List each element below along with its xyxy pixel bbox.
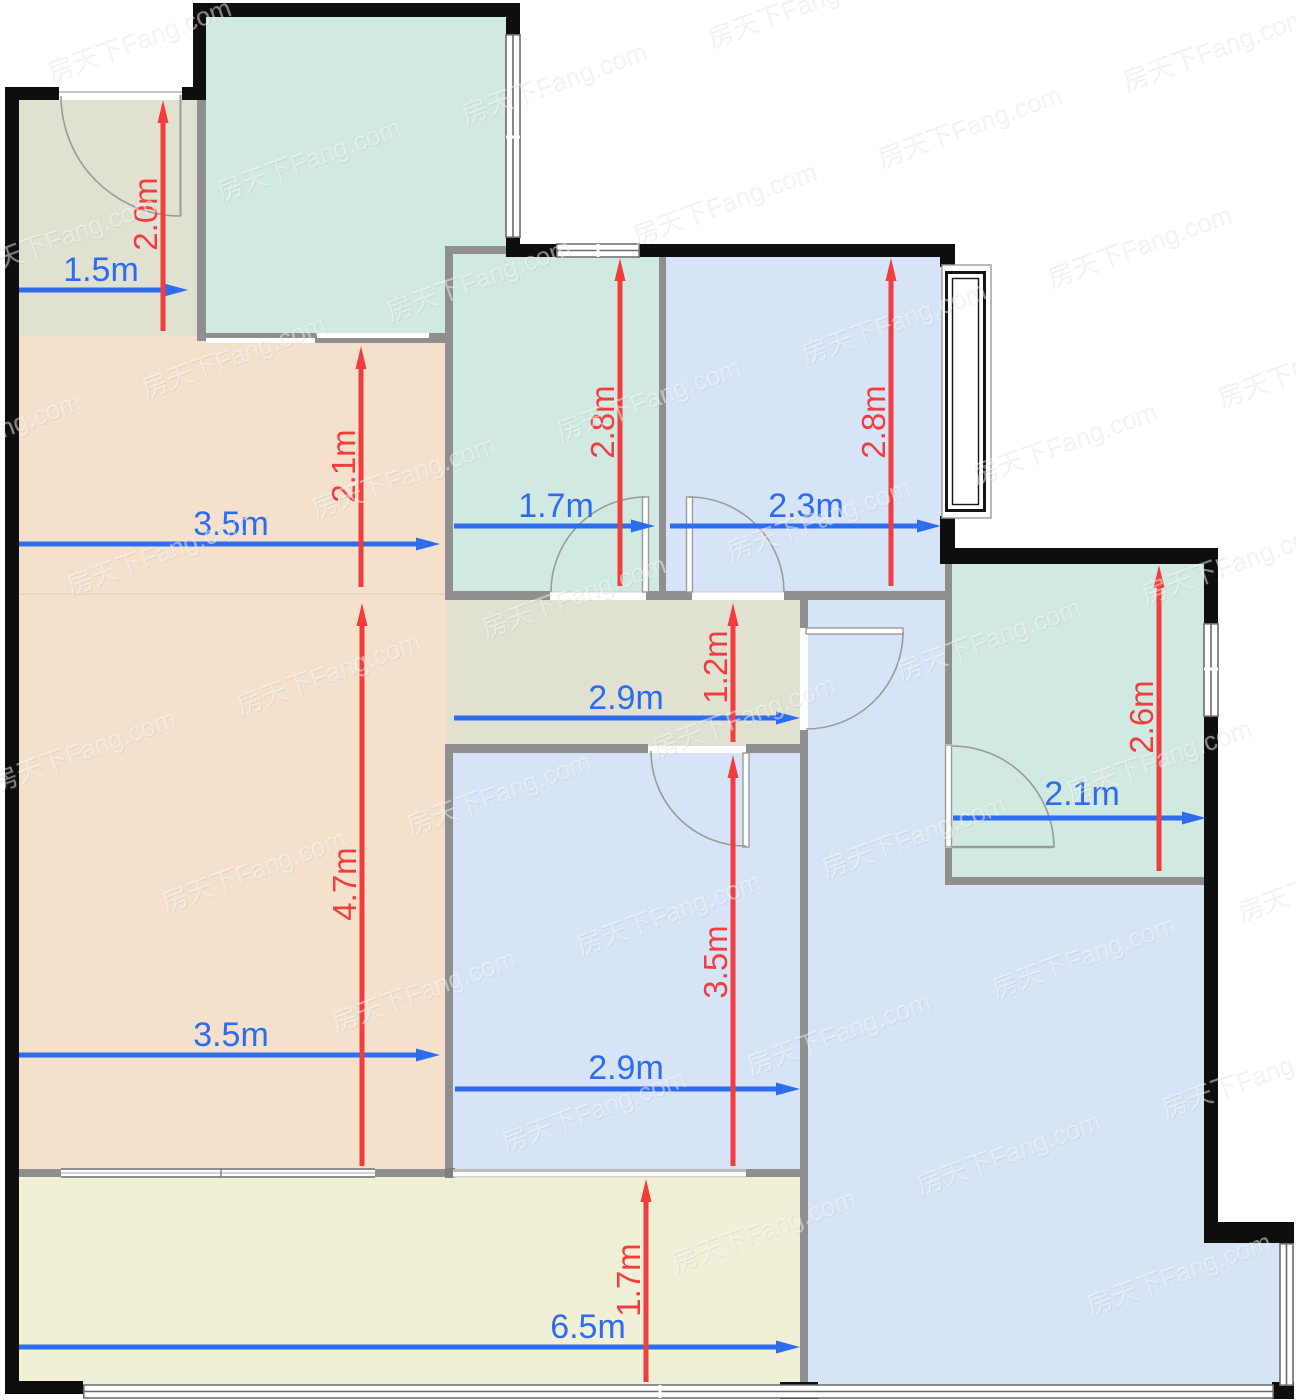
svg-text:2.8m: 2.8m [855, 385, 892, 458]
svg-text:2.9m: 2.9m [588, 679, 664, 717]
svg-text:1.7m: 1.7m [518, 487, 594, 525]
svg-text:3.5m: 3.5m [697, 925, 734, 998]
svg-text:1.7m: 1.7m [610, 1243, 647, 1316]
svg-text:2.6m: 2.6m [1123, 680, 1160, 753]
svg-text:3.5m: 3.5m [193, 1016, 269, 1054]
svg-text:1.2m: 1.2m [697, 630, 734, 703]
svg-text:1.5m: 1.5m [63, 251, 139, 289]
